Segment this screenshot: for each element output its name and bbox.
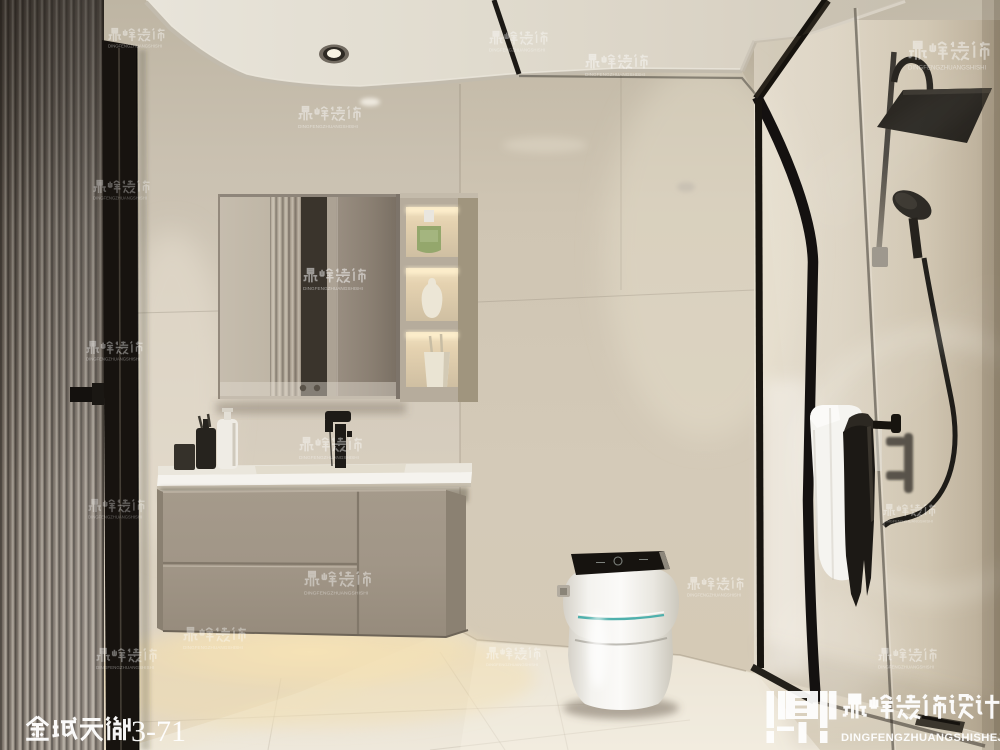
svg-text:3-71: 3-71: [131, 715, 186, 748]
svg-text:DINGFENGZHUANGSHISHEJI: DINGFENGZHUANGSHISHEJI: [841, 732, 1000, 744]
